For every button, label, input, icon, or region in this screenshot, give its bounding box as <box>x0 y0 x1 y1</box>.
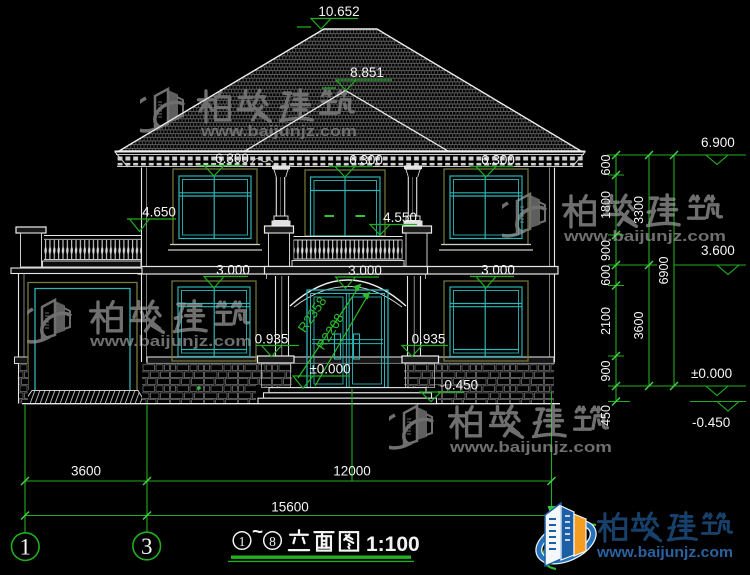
svg-text:12000: 12000 <box>333 464 371 479</box>
svg-text:3.000: 3.000 <box>216 263 250 278</box>
svg-text:1:100: 1:100 <box>366 533 420 556</box>
svg-text:600: 600 <box>599 155 613 176</box>
svg-text:4.550: 4.550 <box>383 210 417 225</box>
svg-text:±0.000: ±0.000 <box>309 362 350 377</box>
svg-text:8.851: 8.851 <box>350 65 384 80</box>
svg-text:600: 600 <box>599 265 613 286</box>
svg-text:3.600: 3.600 <box>701 243 735 258</box>
svg-text:4.650: 4.650 <box>142 205 176 220</box>
svg-text:±0.000: ±0.000 <box>691 366 732 381</box>
svg-text:6.900: 6.900 <box>701 135 735 150</box>
svg-text:900: 900 <box>599 361 613 382</box>
svg-text:www.baijunjz.com: www.baijunjz.com <box>596 545 733 561</box>
svg-text:-0.450: -0.450 <box>440 378 478 393</box>
svg-text:1: 1 <box>20 535 32 560</box>
svg-text:3.000: 3.000 <box>481 263 515 278</box>
svg-text:8: 8 <box>269 534 276 549</box>
svg-text:6900: 6900 <box>657 257 671 285</box>
svg-text:www.baijunjz.com: www.baijunjz.com <box>200 123 357 140</box>
svg-text:1: 1 <box>239 534 246 549</box>
svg-text:3600: 3600 <box>71 464 101 479</box>
svg-text:10.652: 10.652 <box>318 4 359 19</box>
svg-text:15600: 15600 <box>271 500 309 515</box>
svg-text:3600: 3600 <box>632 312 646 340</box>
svg-text:6.300: 6.300 <box>215 151 249 166</box>
svg-text:3.000: 3.000 <box>348 263 382 278</box>
svg-text:6.300: 6.300 <box>349 153 383 168</box>
svg-text:6.300: 6.300 <box>481 153 515 168</box>
svg-text:www.baijunjz.com: www.baijunjz.com <box>563 228 726 245</box>
svg-text:3: 3 <box>141 534 153 559</box>
svg-text:0.935: 0.935 <box>255 332 289 347</box>
svg-text:-0.450: -0.450 <box>692 415 730 430</box>
svg-text:~: ~ <box>252 522 263 543</box>
svg-text:0.935: 0.935 <box>412 332 446 347</box>
svg-text:www.baijunjz.com: www.baijunjz.com <box>449 439 612 456</box>
svg-text:www.baijunjz.com: www.baijunjz.com <box>89 333 252 350</box>
svg-text:2100: 2100 <box>599 307 613 335</box>
